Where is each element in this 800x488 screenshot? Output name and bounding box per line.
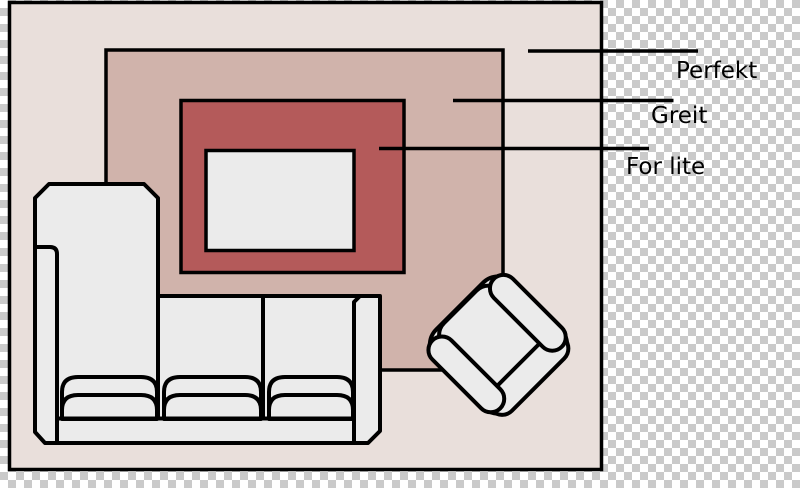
- label-greit: Greit: [651, 105, 707, 128]
- sofa-cushion-front: [164, 395, 261, 419]
- sofa-cushion-front: [62, 395, 157, 419]
- sofa-cushion-front: [269, 395, 353, 419]
- rug-small-for-lite: [206, 151, 354, 251]
- transparency-checkerboard: Perfekt Greit For lite: [0, 0, 800, 488]
- label-perfekt: Perfekt: [676, 60, 757, 83]
- label-for-lite: For lite: [626, 156, 705, 179]
